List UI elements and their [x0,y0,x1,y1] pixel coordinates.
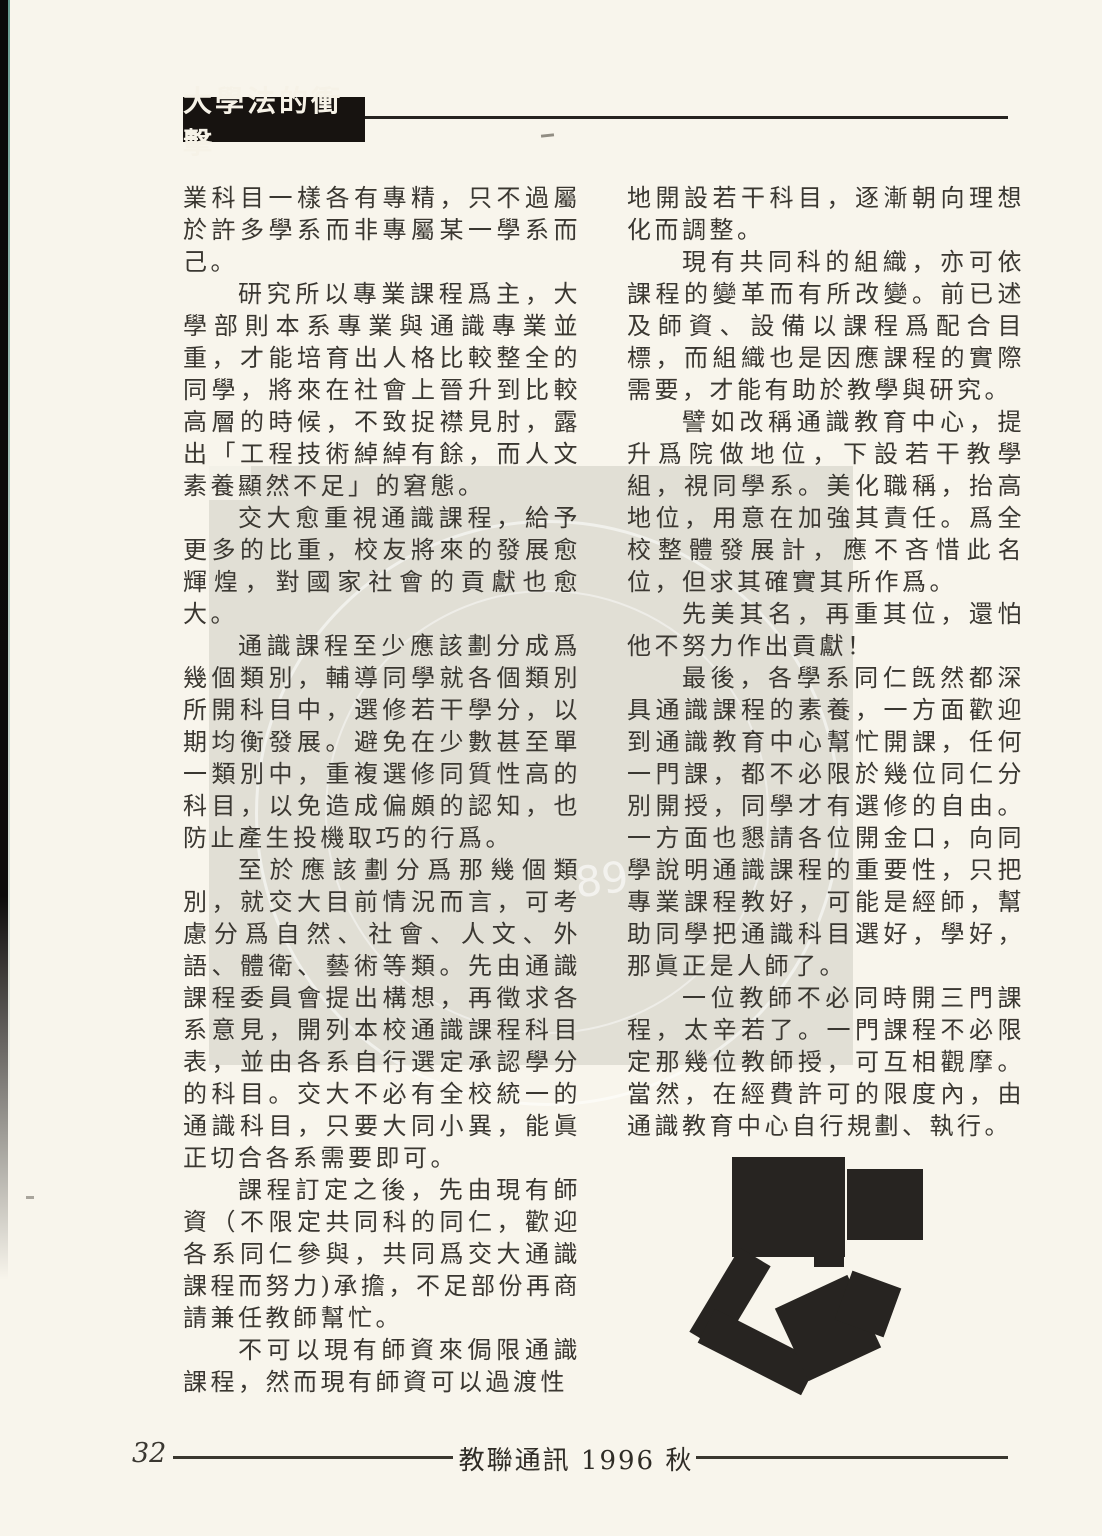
paragraph: 一位教師不必同時開三門課程，太辛若了。一門課程不必限定那幾位教師授，可互相觀摩。… [627,982,1025,1142]
scan-edge-teal-line [8,0,10,1200]
footer-rule-left [173,1456,453,1459]
paragraph: 譬如改稱通識教育中心，提升爲院做地位，下設若干教學組，視同學系。美化職稱，抬高地… [627,406,1025,598]
paragraph: 課程訂定之後，先由現有師資（不限定共同科的同仁，歡迎各系同仁參與，共同爲交大通識… [183,1174,581,1334]
text-column-right: 地開設若干科目，逐漸朝向理想化而調整。現有共同科的組織，亦可依課程的變革而有所改… [627,182,1025,1142]
scan-speck [541,133,554,137]
page-title: 大學法的衝擊 [183,78,365,162]
paragraph: 現有共同科的組織，亦可依課程的變革而有所改變。前已述及師資、設備以課程爲配合目標… [627,246,1025,406]
footer-rule-right [696,1456,1008,1459]
graphic-medium-square [847,1169,923,1240]
paragraph: 研究所以專業課程爲主，大學部則本系專業與通識專業並重，才能培育出人格比較整全的同… [183,278,581,502]
text-column-left: 業科目一樣各有專精，只不過屬於許多學系而非專屬某一學系而己。研究所以專業課程爲主… [183,182,581,1398]
paragraph: 至於應該劃分爲那幾個類別，就交大目前情況而言，可考慮分爲自然、社會、人文、外語、… [183,854,581,1174]
paragraph: 交大愈重視通識課程，給予更多的比重，校友將來的發展愈輝煌，對國家社會的貢獻也愈大… [183,502,581,630]
scanned-magazine-page: 大學法的衝擊 89 業科目一樣各有專精，只不過屬於許多學系而非專屬某一學系而己。… [0,0,1102,1536]
paragraph: 地開設若干科目，逐漸朝向理想化而調整。 [627,182,1025,246]
footer-page-number: 32 [132,1438,166,1469]
section-title-banner: 大學法的衝擊 [183,97,365,142]
paragraph: 最後，各學系同仁旣然都深具通識課程的素養，一方面歡迎到通識教育中心幫忙開課，任何… [627,662,1025,982]
paragraph: 業科目一樣各有專精，只不過屬於許多學系而非專屬某一學系而己。 [183,182,581,278]
footer-journal-title: 教聯通訊 1996 秋 [456,1440,696,1477]
header-rule-line [365,116,1008,119]
graphic-small-square [814,1239,844,1267]
scan-edge-black-strip [0,0,8,1280]
scan-speck [26,1196,34,1199]
paragraph: 先美其名，再重其位，還怕他不努力作出貢獻！ [627,598,1025,662]
paragraph: 通識課程至少應該劃分成爲幾個類別，輔導同學就各個類別所開科目中，選修若干學分，以… [183,630,581,854]
paragraph: 不可以現有師資來侷限通識課程，然而現有師資可以過渡性 [183,1334,581,1398]
